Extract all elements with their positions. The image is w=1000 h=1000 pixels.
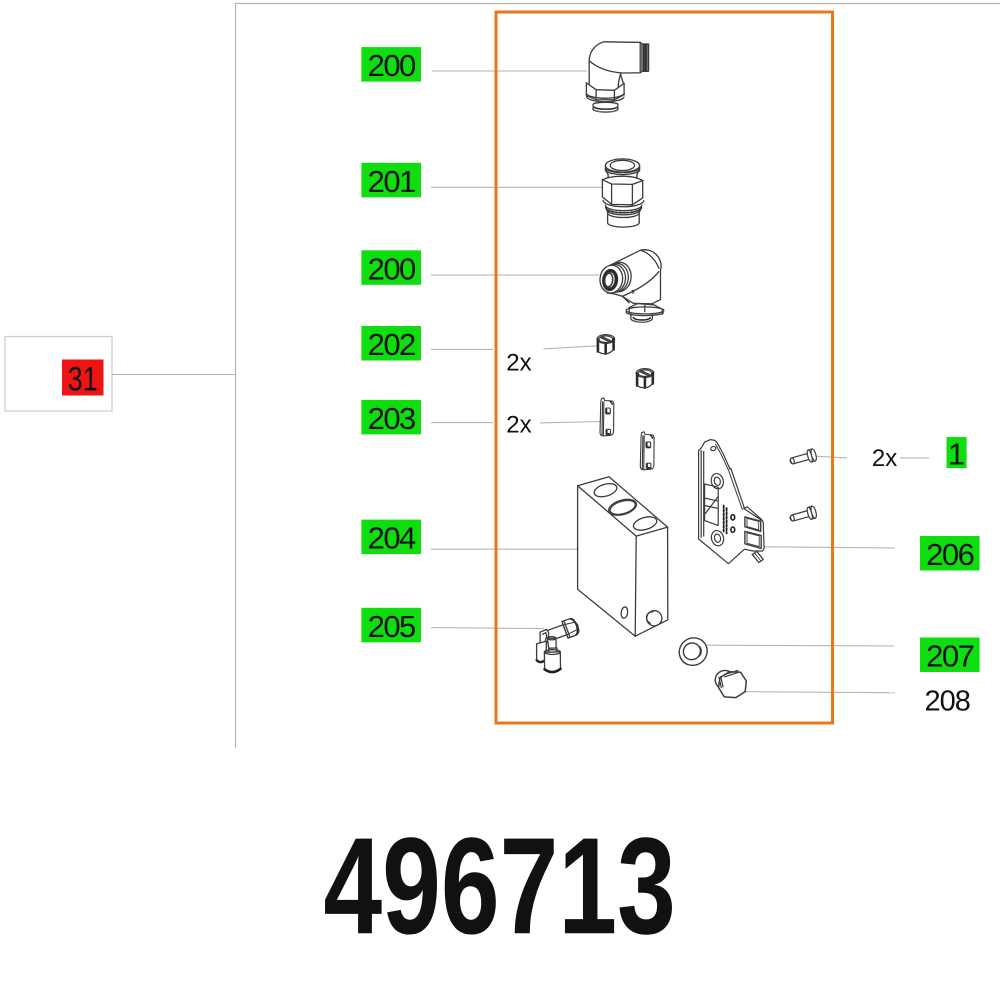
svg-text:200: 200 (368, 48, 416, 83)
svg-text:207: 207 (926, 639, 973, 674)
svg-text:203: 203 (368, 401, 415, 436)
svg-text:205: 205 (368, 609, 415, 644)
svg-text:206: 206 (926, 537, 973, 572)
svg-text:208: 208 (925, 685, 970, 717)
svg-text:31: 31 (68, 359, 98, 398)
svg-text:2x: 2x (506, 412, 531, 439)
svg-text:2x: 2x (506, 349, 531, 376)
svg-text:200: 200 (368, 251, 416, 286)
svg-text:496713: 496713 (323, 809, 675, 963)
svg-text:1: 1 (948, 436, 965, 471)
svg-text:201: 201 (368, 164, 415, 199)
svg-text:202: 202 (368, 327, 415, 362)
svg-text:2x: 2x (872, 445, 897, 472)
svg-text:204: 204 (368, 521, 416, 556)
